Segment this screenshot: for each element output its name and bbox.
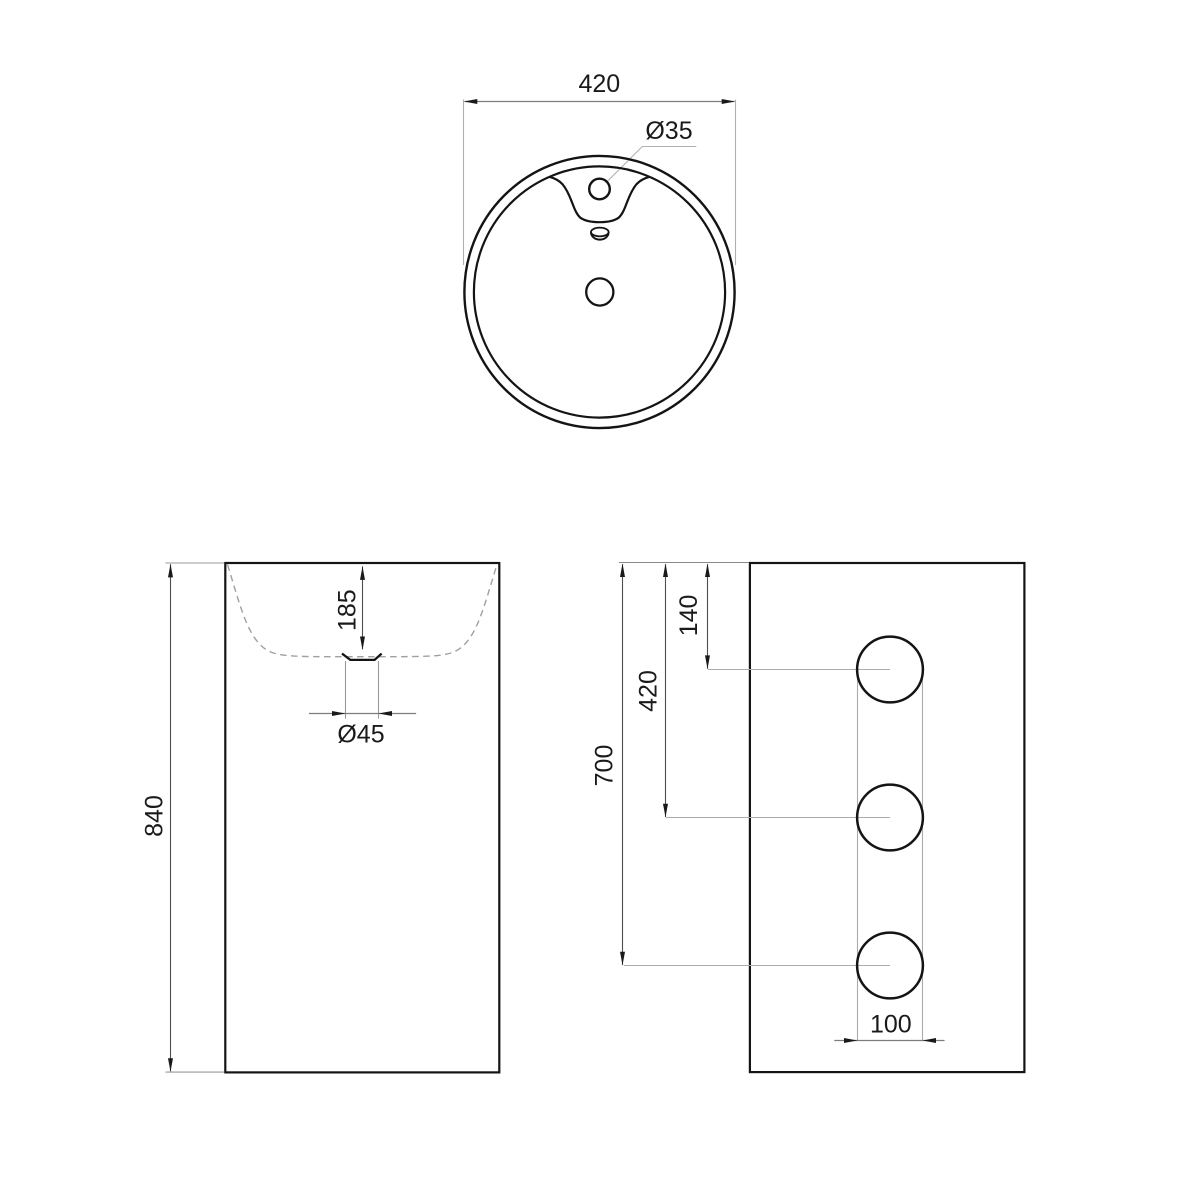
- svg-text:Ø35: Ø35: [645, 117, 692, 145]
- svg-text:420: 420: [578, 70, 620, 98]
- svg-text:700: 700: [591, 745, 619, 787]
- svg-text:Ø45: Ø45: [337, 720, 384, 748]
- svg-text:420: 420: [635, 670, 663, 712]
- svg-text:140: 140: [675, 595, 703, 637]
- svg-text:840: 840: [140, 795, 168, 837]
- svg-text:185: 185: [334, 589, 362, 631]
- svg-text:100: 100: [870, 1011, 912, 1039]
